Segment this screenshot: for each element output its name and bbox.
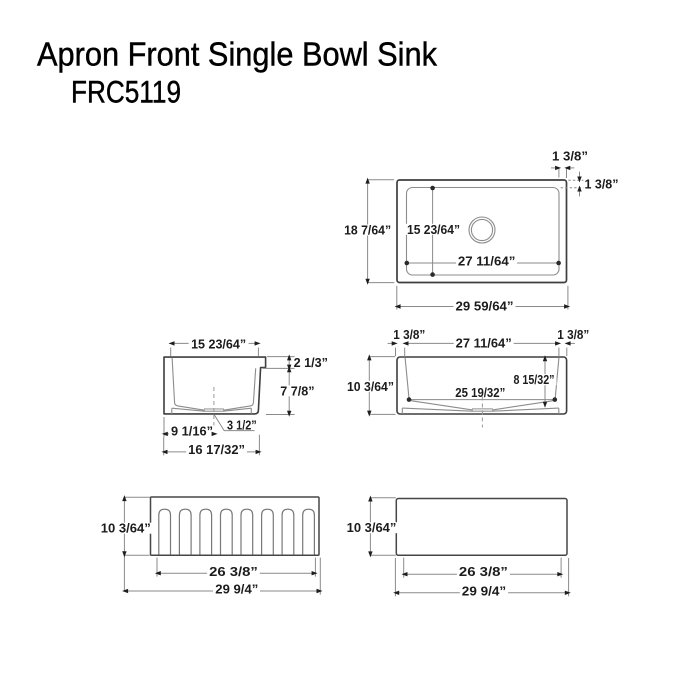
svg-text:10 3/64”: 10 3/64” [347,380,394,394]
svg-text:27 11/64”: 27 11/64” [456,336,512,350]
svg-text:7 7/8”: 7 7/8” [280,384,314,398]
svg-text:Apron Front Single Bowl Sink: Apron Front Single Bowl Sink [37,37,437,74]
svg-text:15 23/64”: 15 23/64” [191,338,246,352]
svg-text:18 7/64”: 18 7/64” [344,224,391,238]
svg-text:1 3/8”: 1 3/8” [393,328,425,342]
svg-text:3 1/2”: 3 1/2” [227,419,257,433]
svg-text:27 11/64”: 27 11/64” [458,254,516,268]
svg-text:26 3/8”: 26 3/8” [459,565,508,579]
svg-text:16 17/32”: 16 17/32” [188,443,245,457]
svg-text:2 1/3”: 2 1/3” [294,356,328,370]
svg-text:29 9/4”: 29 9/4” [462,584,506,598]
svg-text:1 3/8”: 1 3/8” [557,328,589,342]
svg-text:1 3/8”: 1 3/8” [585,178,619,192]
svg-text:29 9/4”: 29 9/4” [215,583,258,597]
svg-text:8 15/32”: 8 15/32” [514,373,555,387]
svg-text:26 3/8”: 26 3/8” [209,565,258,579]
svg-text:9 1/16”: 9 1/16” [171,424,213,438]
svg-text:25 19/32”: 25 19/32” [455,386,505,400]
svg-text:FRC5119: FRC5119 [71,73,181,109]
svg-text:10 3/64”: 10 3/64” [347,521,397,535]
svg-text:15 23/64”: 15 23/64” [407,223,460,237]
svg-text:29 59/64”: 29 59/64” [456,299,514,313]
svg-text:10 3/64”: 10 3/64” [101,522,151,536]
svg-text:1 3/8”: 1 3/8” [552,150,588,164]
